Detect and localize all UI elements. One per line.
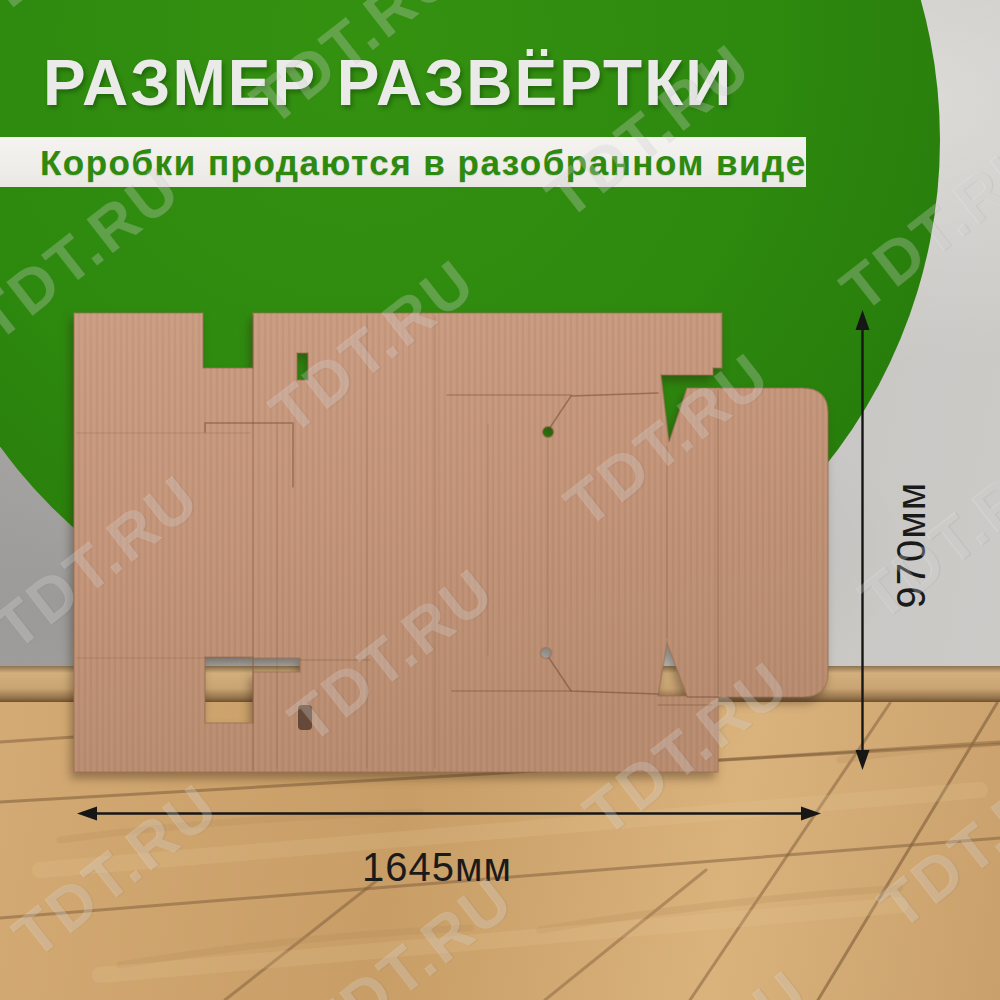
height-dimension-label: 970мм xyxy=(889,482,934,609)
slot-cut xyxy=(298,705,312,730)
width-arrow xyxy=(77,807,821,821)
arrowhead-up-icon xyxy=(856,310,870,330)
height-arrow xyxy=(856,310,870,770)
arrowhead-left-icon xyxy=(77,807,97,821)
arrowhead-down-icon xyxy=(856,750,870,770)
arrowhead-right-icon xyxy=(801,807,821,821)
width-dimension-label: 1645мм xyxy=(362,845,512,890)
cardboard-net xyxy=(74,313,828,772)
product-infographic: РАЗМЕР РАЗВЁРТКИ Коробки продаются в раз… xyxy=(0,0,1000,1000)
